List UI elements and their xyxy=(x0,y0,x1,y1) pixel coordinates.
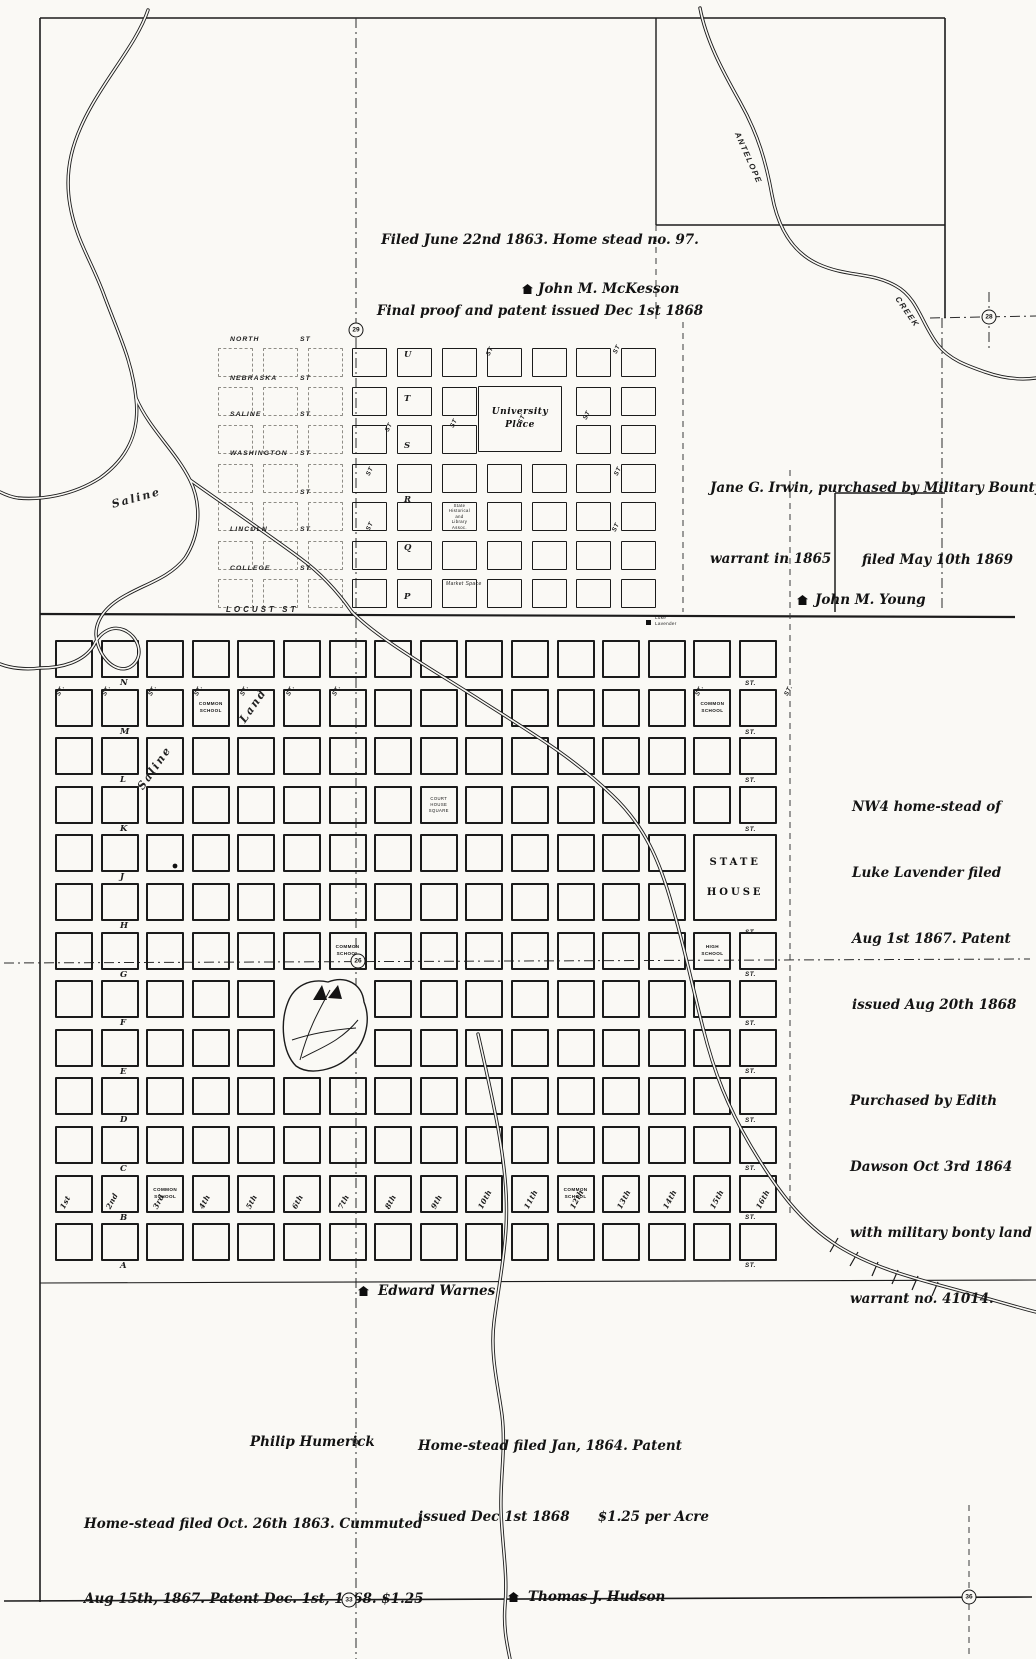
note-line: Home-stead filed Oct. 26th 1863. Cummute… xyxy=(84,1512,424,1537)
note-line: Luke Lavender filed xyxy=(852,862,1016,884)
note-line: filed May 10th 1869 xyxy=(862,549,1013,573)
section-corner-marker: 29 xyxy=(349,323,364,338)
settler-name: Thomas J. Hudson xyxy=(528,1589,665,1605)
settler-humerick: Philip Humerick ⌂ xyxy=(250,1434,375,1450)
note-line: Filed June 22nd 1863. Home stead no. 97. xyxy=(325,229,755,253)
humerick-claim-note: Home-stead filed Oct. 26th 1863. Cummute… xyxy=(84,1462,424,1659)
note-line: Aug 15th, 1867. Patent Dec. 1st, 1868. $… xyxy=(84,1587,424,1612)
dawson-note: Purchased by Edith Dawson Oct 3rd 1864 w… xyxy=(850,1046,1032,1354)
section-corner-marker: 28 xyxy=(982,310,997,325)
section-corner-marker: 33 xyxy=(342,1593,357,1608)
note-line: NW4 home-stead of xyxy=(852,796,1016,818)
note-line: Aug 1st 1867. Patent xyxy=(852,928,1016,950)
note-line: issued Dec 1st 1868 $1.25 per Acre xyxy=(418,1506,709,1530)
note-line: warrant no. 41014. xyxy=(850,1288,1032,1310)
note-line: Final proof and patent issued Dec 1st 18… xyxy=(325,300,755,324)
settler-name: Edward Warnes xyxy=(378,1283,495,1299)
note-line: Purchased by Edith xyxy=(850,1090,1032,1112)
section-corner-marker: 26 xyxy=(351,954,366,969)
note-line: Dawson Oct 3rd 1864 xyxy=(850,1156,1032,1178)
settler-name: John M. Young xyxy=(815,592,926,608)
section-corner-marker: 36 xyxy=(962,1590,977,1605)
house-icon xyxy=(508,1592,519,1602)
note-line: Jane G. Irwin, purchased by Military Bou… xyxy=(710,477,1030,501)
jan-1864-note: Home-stead filed Jan, 1864. Patent issue… xyxy=(418,1388,709,1576)
annotations-layer: Filed June 22nd 1863. Home stead no. 97.… xyxy=(0,0,1036,1659)
settler-warnes: Edward Warnes xyxy=(378,1283,495,1299)
settler-young: John M. Young xyxy=(815,592,926,608)
homestead-plat-map: COMMONSCHOOLCOMMONSCHOOLCOURTHOUSESQUARE… xyxy=(0,0,1036,1659)
cabin-sketch-icon: ⌂ xyxy=(352,1434,359,1447)
note-line: Home-stead filed Jan, 1864. Patent xyxy=(418,1435,709,1459)
note-line: with military bonty land xyxy=(850,1222,1032,1244)
settler-mckesson: John M. McKesson xyxy=(538,281,679,297)
settler-hudson: Thomas J. Hudson xyxy=(528,1589,665,1605)
mckesson-claim-note: Filed June 22nd 1863. Home stead no. 97.… xyxy=(325,182,755,370)
settler-name: John M. McKesson xyxy=(538,281,679,297)
house-icon xyxy=(358,1286,369,1296)
lavender-note: NW4 home-stead of Luke Lavender filed Au… xyxy=(852,752,1016,1060)
note-line: issued Aug 20th 1868 xyxy=(852,994,1016,1016)
